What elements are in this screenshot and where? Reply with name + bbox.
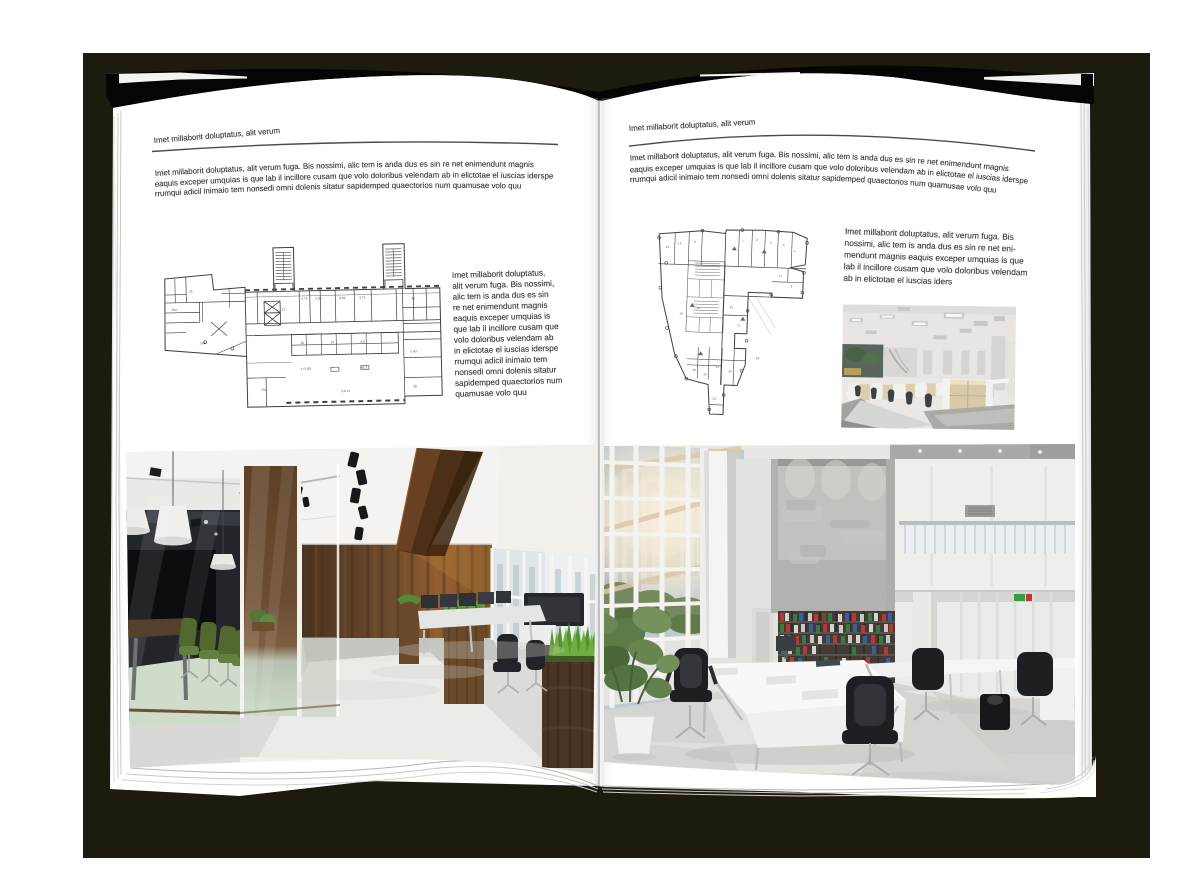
svg-text:25: 25: [697, 306, 701, 310]
svg-text:18: 18: [300, 341, 304, 345]
svg-text:5.43: 5.43: [410, 349, 417, 353]
svg-text:32: 32: [411, 296, 415, 300]
svg-text:20: 20: [703, 372, 707, 376]
svg-text:2.75: 2.75: [301, 297, 308, 301]
svg-text:30: 30: [413, 384, 417, 388]
svg-text:2-й эт: 2-й эт: [341, 389, 350, 393]
svg-text:11: 11: [779, 274, 783, 278]
svg-text:46.3: 46.3: [361, 365, 368, 369]
svg-text:22: 22: [728, 369, 732, 373]
svg-text:2.80: 2.80: [315, 296, 322, 300]
svg-text:24: 24: [756, 356, 760, 360]
svg-text:12: 12: [666, 245, 670, 249]
svg-text:21: 21: [716, 365, 720, 369]
svg-text:23a: 23a: [261, 388, 267, 392]
svg-text:16: 16: [730, 305, 734, 309]
svg-text:3.75: 3.75: [359, 296, 366, 300]
svg-text:21: 21: [281, 307, 285, 311]
svg-text:23: 23: [712, 397, 716, 401]
svg-text:4.8: 4.8: [360, 340, 365, 344]
svg-text:17: 17: [737, 323, 741, 327]
svg-text:14: 14: [678, 241, 682, 245]
svg-text:15: 15: [679, 311, 683, 315]
svg-text:28b: 28b: [200, 341, 206, 345]
svg-text:1+2.88: 1+2.88: [301, 367, 311, 371]
svg-text:3.09: 3.09: [339, 296, 346, 300]
svg-text:13: 13: [330, 340, 334, 344]
svg-text:10a: 10a: [171, 308, 177, 312]
svg-text:19: 19: [692, 368, 696, 372]
svg-text:25: 25: [189, 289, 193, 293]
